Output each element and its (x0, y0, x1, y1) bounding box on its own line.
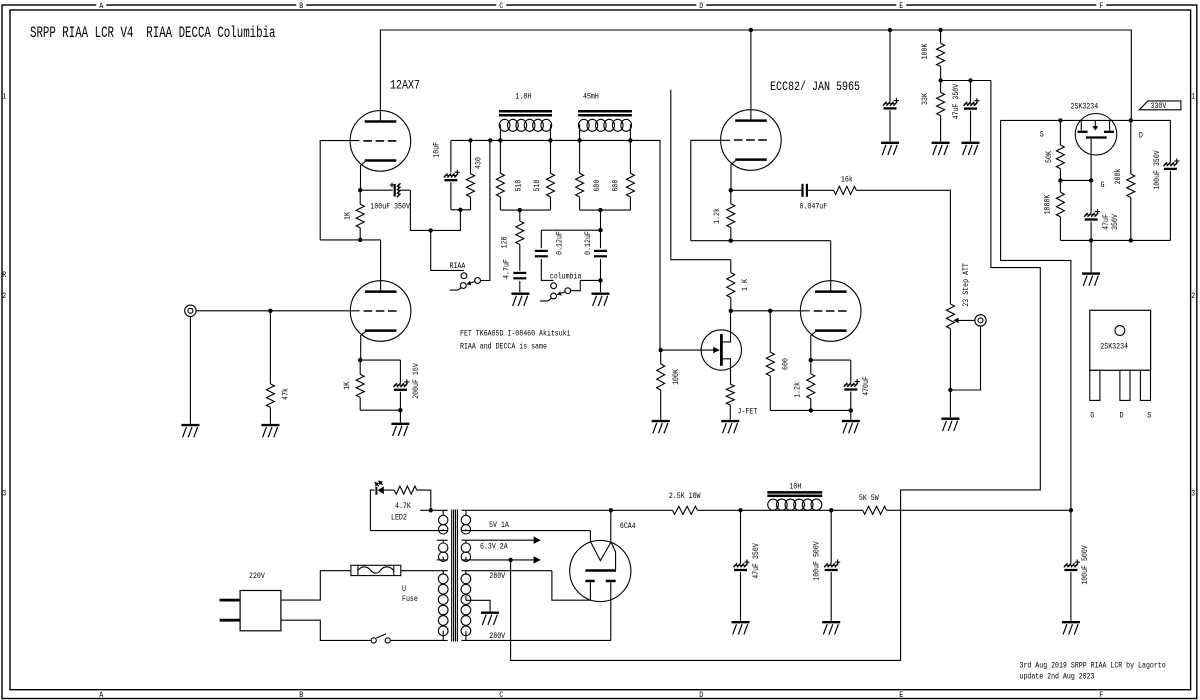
svg-text:120: 120 (500, 236, 510, 248)
svg-text:F: F (1099, 690, 1103, 700)
svg-text:R: R (2, 270, 6, 280)
svg-text:A: A (99, 1, 104, 11)
svg-text:1 K: 1 K (740, 278, 750, 291)
svg-text:47uF 350V: 47uF 350V (951, 83, 961, 119)
svg-text:200k: 200k (1113, 169, 1123, 185)
svg-text:B: B (299, 1, 303, 11)
svg-text:LED2: LED2 (391, 512, 407, 522)
svg-text:200uF 16V: 200uF 16V (411, 363, 421, 399)
svg-text:280V: 280V (489, 631, 505, 641)
svg-text:100uF 350V: 100uF 350V (370, 202, 410, 212)
svg-text:A: A (99, 690, 104, 700)
svg-text:2: 2 (1191, 291, 1195, 301)
svg-text:470uF: 470uF (861, 376, 871, 396)
svg-text:4.7K: 4.7K (395, 501, 411, 511)
svg-text:6.3V 2A: 6.3V 2A (480, 541, 508, 551)
svg-text:S: S (1040, 130, 1044, 140)
svg-text:C: C (499, 1, 503, 11)
svg-text:45mH: 45mH (583, 91, 599, 101)
svg-text:B: B (299, 690, 303, 700)
svg-text:5V 1A: 5V 1A (489, 520, 509, 530)
svg-text:0.12uF: 0.12uF (583, 231, 593, 255)
svg-text:0.12uF: 0.12uF (554, 231, 564, 255)
svg-text:510: 510 (513, 180, 523, 192)
svg-text:330V: 330V (1151, 101, 1167, 111)
svg-text:4.7uF: 4.7uF (502, 259, 512, 279)
svg-text:0.047uF: 0.047uF (800, 201, 828, 211)
svg-text:47uF 350V: 47uF 350V (751, 543, 761, 579)
svg-text:D: D (1139, 131, 1143, 141)
svg-text:RIAA: RIAA (450, 261, 466, 271)
svg-text:280V: 280V (489, 571, 505, 581)
svg-text:D: D (699, 690, 703, 700)
svg-text:2: 2 (2, 291, 6, 301)
svg-text:1.2k: 1.2k (712, 208, 722, 224)
svg-text:100K: 100K (671, 368, 681, 384)
svg-text:350V: 350V (1110, 213, 1120, 229)
svg-text:D: D (699, 1, 703, 11)
svg-text:1K: 1K (342, 211, 352, 220)
svg-text:D: D (1120, 410, 1124, 420)
svg-text:12AX7: 12AX7 (390, 78, 420, 93)
svg-text:E: E (899, 690, 903, 700)
svg-text:1K: 1K (342, 381, 352, 390)
svg-text:16k: 16k (841, 174, 853, 184)
svg-text:1.2k: 1.2k (793, 382, 803, 398)
svg-text:10uF: 10uF (432, 142, 442, 158)
svg-text:2SK3234: 2SK3234 (1071, 101, 1099, 111)
svg-text:220V: 220V (249, 571, 265, 581)
svg-text:5K 5W: 5K 5W (859, 493, 879, 503)
svg-text:1: 1 (2, 92, 6, 102)
svg-text:3: 3 (1191, 488, 1195, 498)
svg-text:2.5K 10W: 2.5K 10W (669, 491, 701, 501)
svg-text:100uF 500V: 100uF 500V (812, 541, 822, 581)
svg-text:F: F (1099, 1, 1103, 11)
svg-text:33K: 33K (920, 92, 930, 105)
svg-text:1000K: 1000K (1043, 194, 1053, 214)
svg-text:1: 1 (1191, 92, 1195, 102)
svg-text:100uF 350V: 100uF 350V (1152, 150, 1162, 190)
svg-text:columbia: columbia (550, 271, 582, 281)
svg-text:SRPP RIAA LCR V4 RIAA DECCA C: SRPP RIAA LCR V4 RIAA DECCA Columibia (30, 24, 276, 42)
svg-text:Fuse: Fuse (402, 594, 418, 604)
svg-text:G: G (1101, 180, 1105, 190)
svg-text:6CA4: 6CA4 (620, 521, 636, 531)
svg-text:FET TK6A65D I-08460 Akitsuki: FET TK6A65D I-08460 Akitsuki (460, 328, 571, 338)
svg-text:3rd Aug 2019 SRPP RIAA LCR by: 3rd Aug 2019 SRPP RIAA LCR by Lagorto (1020, 661, 1166, 671)
svg-text:100uF 500V: 100uF 500V (1080, 545, 1090, 585)
svg-text:U: U (402, 584, 406, 594)
svg-text:2SK3234: 2SK3234 (1100, 341, 1128, 351)
svg-text:update 2nd Aug 2023: update 2nd Aug 2023 (1020, 671, 1095, 681)
svg-text:1.8H: 1.8H (516, 91, 532, 101)
svg-text:G: G (1090, 410, 1094, 420)
svg-text:E: E (899, 1, 903, 11)
svg-text:600: 600 (781, 358, 791, 370)
svg-text:ECC82/ JAN 5965: ECC82/ JAN 5965 (770, 79, 860, 94)
svg-text:3: 3 (2, 488, 6, 498)
svg-text:S: S (1147, 410, 1151, 420)
svg-text:430: 430 (474, 157, 484, 169)
svg-text:50K: 50K (1044, 150, 1054, 163)
svg-text:J-FET: J-FET (738, 407, 758, 417)
svg-text:47k: 47k (281, 388, 291, 400)
svg-text:RIAA and DECCA is same: RIAA and DECCA is same (460, 342, 547, 352)
svg-text:C: C (499, 690, 503, 700)
svg-text:600: 600 (592, 180, 602, 192)
svg-text:100K: 100K (920, 43, 930, 59)
svg-text:510: 510 (532, 180, 542, 192)
svg-text:10H: 10H (789, 481, 801, 491)
svg-text:600: 600 (611, 180, 621, 192)
svg-text:23 Step ATT: 23 Step ATT (961, 263, 971, 307)
